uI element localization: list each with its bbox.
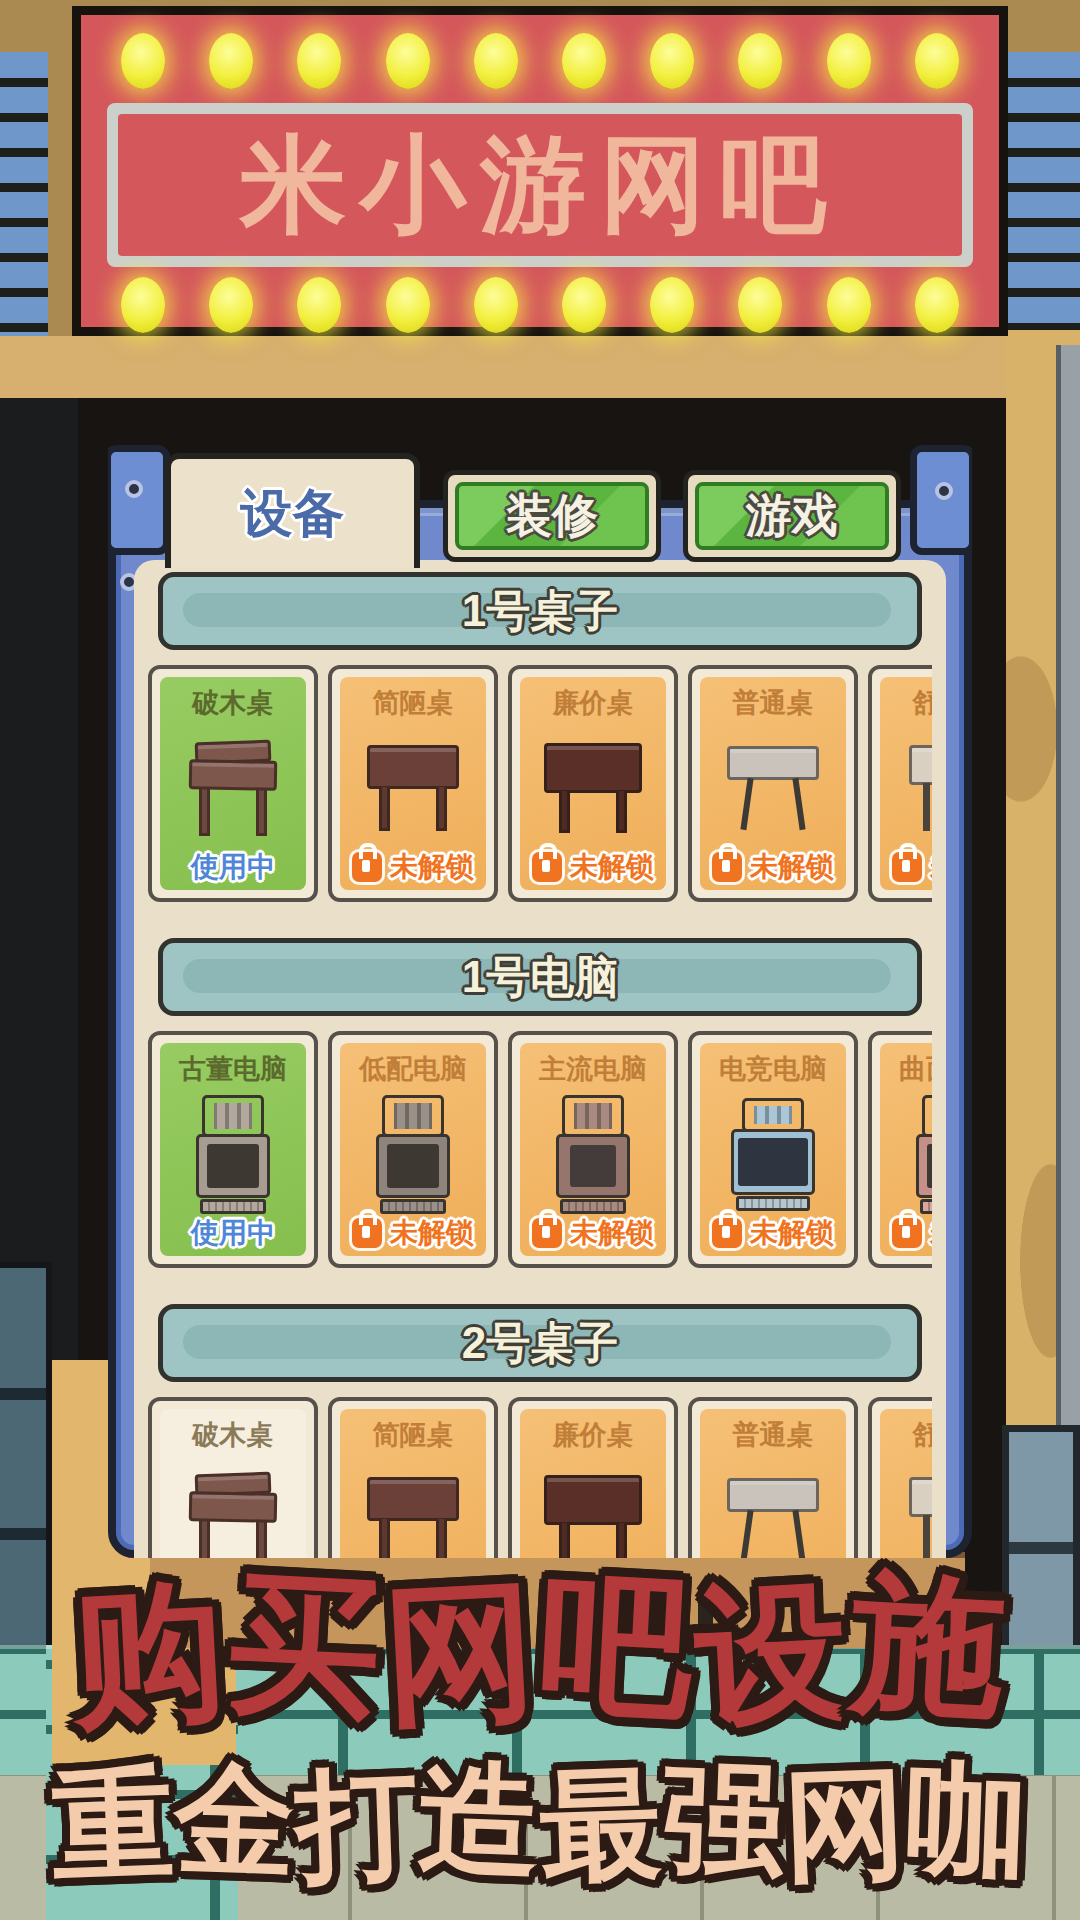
item-card[interactable]: 简陋桌: [328, 1397, 498, 1558]
lock-icon: [532, 852, 562, 882]
bulb-icon: [738, 277, 782, 333]
bulb-icon: [474, 33, 518, 89]
bulb-icon: [474, 277, 518, 333]
item-name: 普通桌: [700, 685, 846, 721]
item-name: 廉价桌: [520, 1417, 666, 1453]
item-name: 舒适桌: [880, 685, 932, 721]
bulb-row-bottom: [99, 277, 981, 333]
item-name: 曲面电脑: [880, 1051, 932, 1087]
table-art: [544, 743, 642, 833]
promo-char: 打: [293, 1743, 421, 1911]
promo-char: 买: [223, 1541, 390, 1754]
bulb-icon: [738, 33, 782, 89]
item-row: 破木桌 简陋桌 廉价桌 普通桌 舒适桌: [148, 1397, 932, 1558]
computer-art: [376, 1095, 450, 1214]
promo-char: 购: [67, 1549, 234, 1762]
tab-label: 装修: [506, 485, 598, 547]
sign-panel: 米小游网吧: [118, 114, 962, 256]
lock-icon: [532, 1218, 562, 1248]
promo-char: 网: [781, 1743, 909, 1911]
section-header: 1号电脑: [158, 938, 922, 1016]
status-badge: 使用中: [152, 1214, 314, 1252]
computer-art: [731, 1098, 815, 1211]
item-name: 主流电脑: [520, 1051, 666, 1087]
bulb-icon: [915, 33, 959, 89]
bulb-icon: [121, 277, 165, 333]
bulb-icon: [297, 33, 341, 89]
item-name: 舒适桌: [880, 1417, 932, 1453]
screen: 米小游网吧 装修 游戏 1号桌子 破木桌 使用中 简陋桌 未解锁: [0, 0, 1080, 1920]
window-shutter-right: [1008, 52, 1080, 338]
sign-frame: 米小游网吧: [107, 103, 973, 267]
status-badge: 未解锁: [332, 848, 494, 886]
corner-plate-left: [108, 445, 170, 555]
item-card[interactable]: 破木桌: [148, 1397, 318, 1558]
lock-icon: [352, 1218, 382, 1248]
tab-decoration[interactable]: 装修: [443, 470, 661, 562]
tab-games-pane: 游戏: [695, 482, 889, 550]
status-badge: 未解锁: [872, 1214, 932, 1252]
promo-line-2: 重金打造最强网咖: [0, 1742, 1080, 1906]
computer-art: [196, 1095, 270, 1214]
promo-line-1: 购买网吧设施: [0, 1548, 1080, 1753]
status-badge: 未解锁: [692, 848, 854, 886]
promo-char: 施: [847, 1541, 1014, 1754]
section-header: 2号桌子: [158, 1304, 922, 1382]
tab-games[interactable]: 游戏: [683, 470, 901, 562]
bulb-icon: [650, 277, 694, 333]
item-name: 简陋桌: [340, 685, 486, 721]
corner-plate-right: [910, 445, 972, 555]
item-name: 电竞电脑: [700, 1051, 846, 1087]
tab-label: 游戏: [746, 485, 838, 547]
status-badge: 未解锁: [512, 848, 674, 886]
promo-char: 最: [537, 1743, 665, 1911]
bulb-icon: [386, 277, 430, 333]
window-shutter-left: [0, 52, 48, 342]
bulb-icon: [209, 277, 253, 333]
computer-art: [556, 1095, 630, 1214]
item-name: 破木桌: [160, 1417, 306, 1453]
item-card[interactable]: 低配电脑 未解锁: [328, 1031, 498, 1268]
item-card[interactable]: 破木桌 使用中: [148, 665, 318, 902]
sign-title: 米小游网吧: [240, 114, 840, 257]
awning: [0, 336, 1080, 406]
promo-char: 造: [415, 1738, 543, 1906]
bulb-row-top: [99, 33, 981, 89]
computer-art: [916, 1095, 932, 1214]
tab-label: 设备: [241, 479, 345, 549]
lock-icon: [712, 852, 742, 882]
item-name: 古董电脑: [160, 1051, 306, 1087]
rivet-icon: [125, 480, 143, 498]
section-title: 1号电脑: [462, 948, 618, 1007]
item-card[interactable]: 电竞电脑 未解锁: [688, 1031, 858, 1268]
bulb-icon: [209, 33, 253, 89]
item-card[interactable]: 廉价桌: [508, 1397, 678, 1558]
bulb-icon: [297, 277, 341, 333]
table-art: [367, 1477, 459, 1558]
lock-icon: [352, 852, 382, 882]
lock-icon: [712, 1218, 742, 1248]
item-name: 低配电脑: [340, 1051, 486, 1087]
item-row: 破木桌 使用中 简陋桌 未解锁 廉价桌 未解锁 普通桌 未解锁 舒适桌 未解锁: [148, 665, 932, 902]
promo-char: 网: [379, 1549, 546, 1762]
status-badge: 未解锁: [512, 1214, 674, 1252]
item-name: 破木桌: [160, 685, 306, 721]
item-card[interactable]: 主流电脑 未解锁: [508, 1031, 678, 1268]
promo-char: 强: [659, 1738, 787, 1906]
status-badge: 未解锁: [692, 1214, 854, 1252]
item-card[interactable]: 舒适桌: [868, 1397, 932, 1558]
bulb-icon: [915, 277, 959, 333]
promo-char: 金: [171, 1738, 299, 1906]
promo-char: 设: [691, 1549, 858, 1762]
item-name: 普通桌: [700, 1417, 846, 1453]
bulb-icon: [121, 33, 165, 89]
section-title: 1号桌子: [462, 582, 618, 641]
item-name: 简陋桌: [340, 1417, 486, 1453]
signboard: 米小游网吧: [72, 6, 1008, 336]
table-art: [909, 745, 932, 831]
bulb-icon: [650, 33, 694, 89]
status-badge: 未解锁: [332, 1214, 494, 1252]
item-card[interactable]: 古董电脑 使用中: [148, 1031, 318, 1268]
table-art: [727, 746, 819, 830]
item-card[interactable]: 简陋桌 未解锁: [328, 665, 498, 902]
item-card[interactable]: 舒适桌 未解锁: [868, 665, 932, 902]
bulb-icon: [827, 277, 871, 333]
status-badge: 使用中: [152, 848, 314, 886]
promo-char: 重: [49, 1743, 177, 1911]
bulb-icon: [562, 33, 606, 89]
item-card[interactable]: 普通桌: [688, 1397, 858, 1558]
item-row: 古董电脑 使用中 低配电脑 未解锁 主流电脑 未解锁 电竞电脑 未解锁 曲面电脑…: [148, 1031, 932, 1268]
promo-char: 咖: [903, 1738, 1031, 1906]
table-art: [189, 741, 277, 836]
bulb-icon: [386, 33, 430, 89]
status-badge: 未解锁: [872, 848, 932, 886]
rivet-icon: [935, 482, 953, 500]
promo-char: 吧: [535, 1541, 702, 1754]
lock-icon: [892, 1218, 922, 1248]
section-header: 1号桌子: [158, 572, 922, 650]
tab-equipment[interactable]: 设备: [165, 453, 420, 568]
item-card[interactable]: 曲面电脑 未解锁: [868, 1031, 932, 1268]
shop-panel: 装修 游戏 1号桌子 破木桌 使用中 简陋桌 未解锁 廉价桌 未解锁 普通桌 未…: [108, 445, 972, 1558]
lock-icon: [892, 852, 922, 882]
item-card[interactable]: 廉价桌 未解锁: [508, 665, 678, 902]
panel-content: 1号桌子 破木桌 使用中 简陋桌 未解锁 廉价桌 未解锁 普通桌 未解锁 舒适桌…: [134, 560, 946, 1558]
table-art: [727, 1478, 819, 1558]
item-card[interactable]: 普通桌 未解锁: [688, 665, 858, 902]
item-name: 廉价桌: [520, 685, 666, 721]
bulb-icon: [827, 33, 871, 89]
bulb-icon: [562, 277, 606, 333]
section-title: 2号桌子: [462, 1314, 618, 1373]
table-art: [367, 745, 459, 831]
tab-decoration-pane: 装修: [455, 482, 649, 550]
